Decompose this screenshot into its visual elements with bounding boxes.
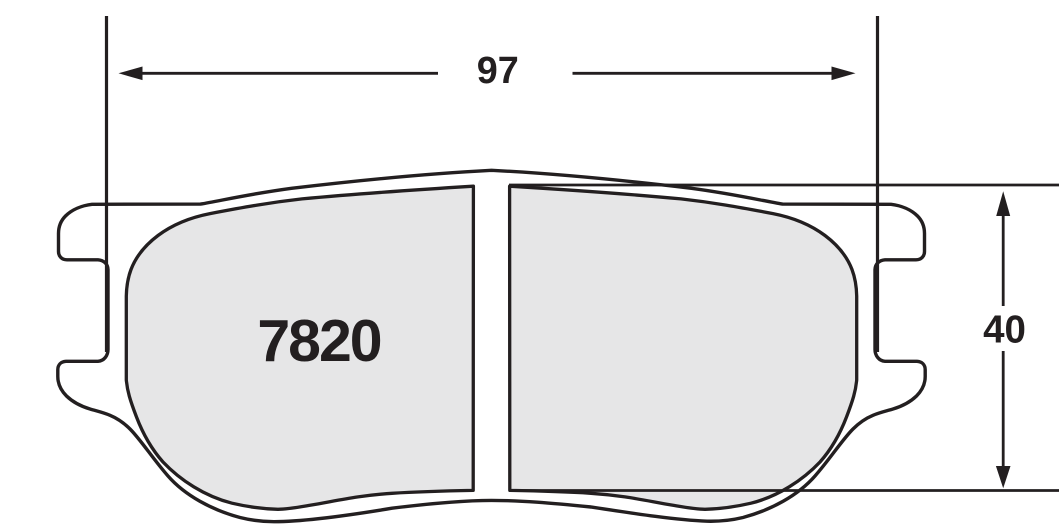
svg-text:7820: 7820 <box>257 308 380 374</box>
svg-text:97: 97 <box>477 50 519 92</box>
svg-text:40: 40 <box>983 309 1026 352</box>
